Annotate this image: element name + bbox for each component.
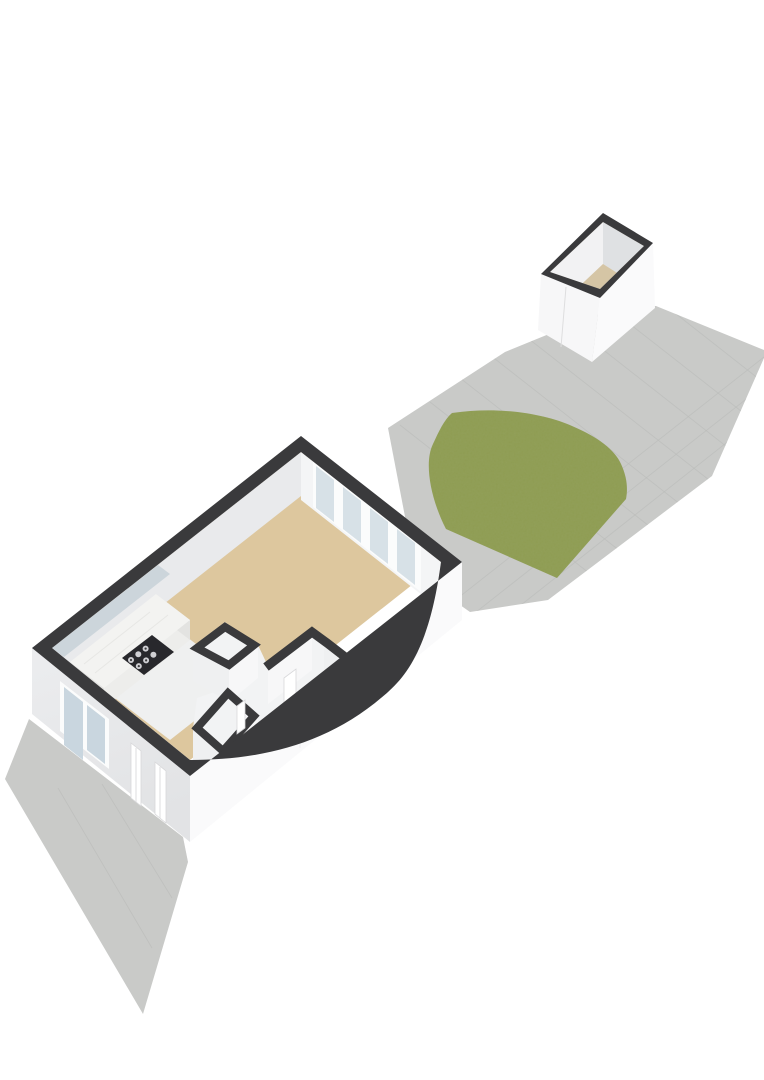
burner [135,651,141,657]
burner [150,652,156,658]
burner-center [130,659,132,661]
floorplan-3d-render [0,0,764,1080]
burner-center [145,659,147,661]
toilet-door [237,700,245,734]
burner-center [145,648,147,650]
floorplan-canvas [0,0,764,1080]
burner-center [138,665,140,667]
